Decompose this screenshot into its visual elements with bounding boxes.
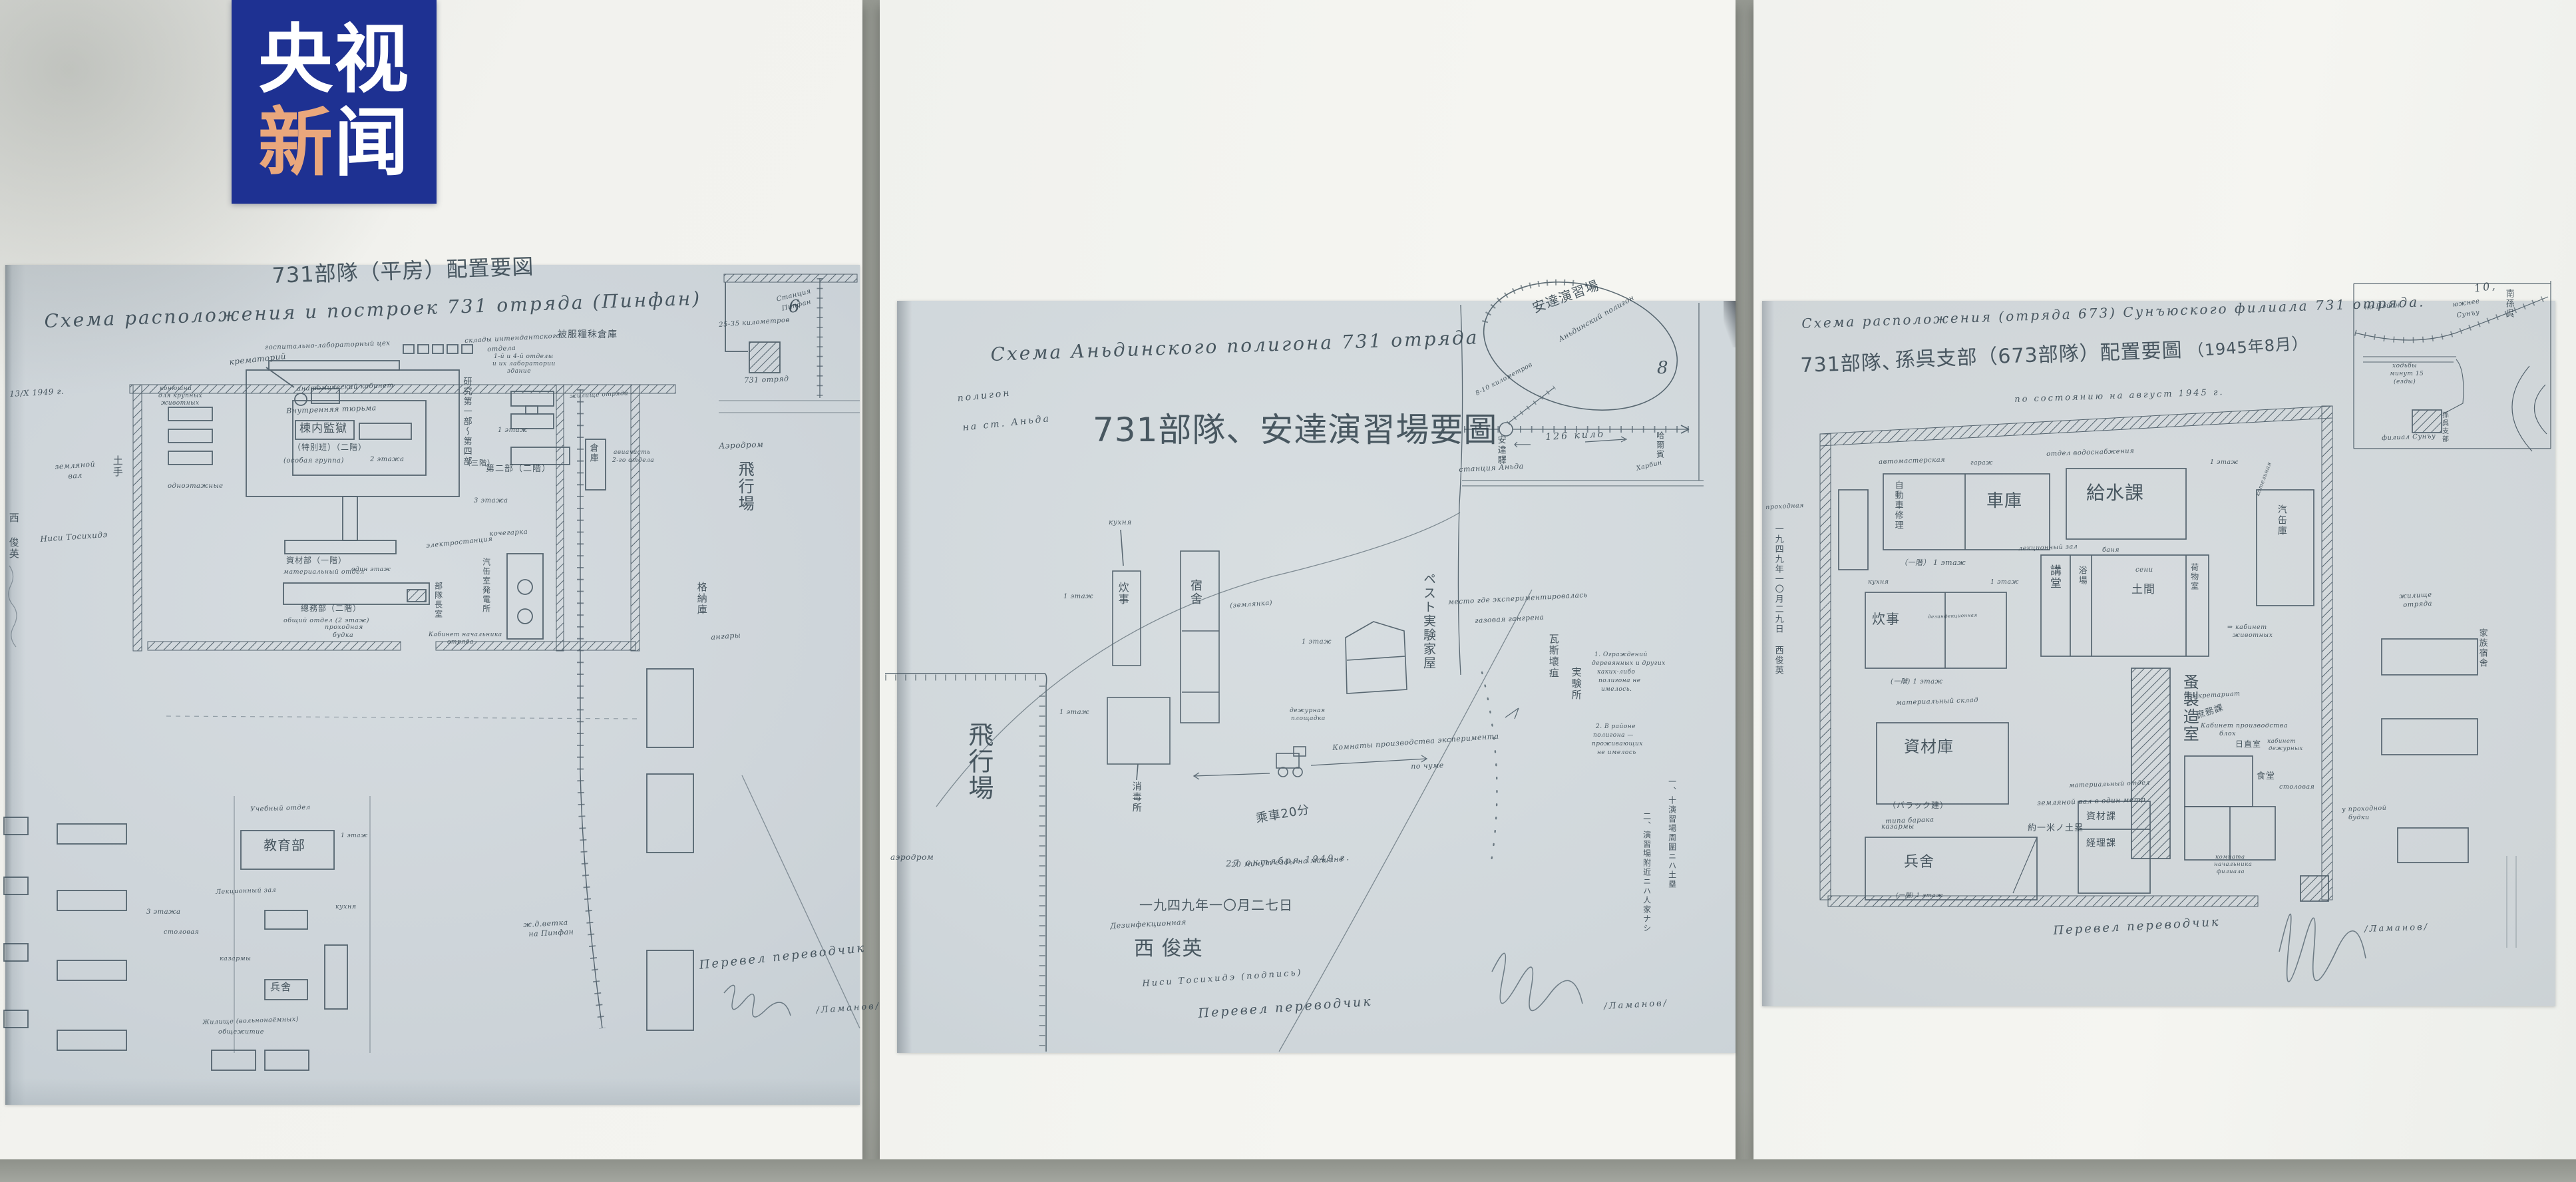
map-label: блох [2219, 731, 2236, 737]
map-label: Схема расположения (отряда 673) Сунъюско… [1801, 295, 2426, 331]
map-label: полигона не [1598, 678, 1641, 684]
map-label: у проходной [2342, 805, 2386, 813]
map-label: 棟内監獄 [299, 423, 347, 435]
map-label: конюшни [160, 386, 192, 392]
map-label: Схема Аньдинского полигона 731 отряда [990, 327, 1479, 364]
map-label: дезинфекционная [1928, 613, 1978, 620]
map-label: 安達驛 [1496, 435, 1505, 465]
news-photo-three-documents: { "logo": { "top": "央视", "bottom_orange"… [0, 0, 2576, 1182]
map-label: 1 этаж [1990, 579, 2019, 586]
map-label: кочегарка [489, 529, 528, 538]
map-label: （特別班）（二階） [293, 443, 367, 452]
map-label: по чуме [1411, 761, 1444, 770]
map-label: вал [68, 472, 83, 481]
map-label: 1. Ограждений [1594, 652, 1648, 658]
map-label: дежурная [1290, 708, 1326, 714]
map-label: 總務部（二階） [301, 604, 361, 613]
map-label: 実験所 [1570, 667, 1581, 701]
map-label: 731部隊、 [1800, 352, 1903, 377]
map-label: животных [161, 401, 200, 407]
map-label: аэродром [890, 853, 934, 862]
map-label: Сунъу [2456, 309, 2480, 319]
map-label: для крупных [158, 393, 202, 399]
map-label: 孫呉支部 [2440, 411, 2448, 443]
map-label: не имелось [1597, 750, 1636, 756]
map-label: отряда [447, 640, 474, 646]
map-label: кухня [1868, 579, 1889, 586]
map-label: 格納庫 [696, 582, 707, 616]
map-label: 車庫 [1986, 492, 2022, 510]
map-label: материальный склад [1896, 697, 1978, 707]
map-label: 西 俊英 [8, 512, 19, 560]
map-label: кухня [1109, 519, 1132, 526]
map-label: филиала [2217, 869, 2245, 875]
map-label: сени [2135, 567, 2153, 574]
map-label: секретариат [2190, 691, 2241, 700]
logo-text-top: 央视 [258, 19, 410, 102]
map-label: Аэродром [719, 441, 764, 451]
map-label: 南孫呉 [2504, 289, 2513, 319]
map-label: 西 俊英 [1134, 938, 1203, 960]
map-label: (землянка) [1230, 600, 1273, 610]
sheet-anda: Схема Аньдинского полигона 731 отряда8по… [880, 0, 1736, 1161]
map-label: 蚤製造室 [2181, 674, 2197, 743]
map-label: 2 этажа [370, 457, 404, 464]
map-label: 2. В районе [1596, 724, 1636, 730]
map-label: казармы [1881, 824, 1915, 831]
map-label: 1-й и 4-й отделы [494, 354, 554, 360]
map-label: 研究第一部～第四部 [462, 377, 471, 467]
map-label: 一九四九年一〇月二九日 西俊英 [1773, 524, 1783, 676]
map-label: 10, [2474, 280, 2497, 294]
map-label: 講堂 [2048, 564, 2060, 590]
map-label: материальный отдел [2069, 780, 2150, 789]
map-label: один этаж [351, 567, 391, 573]
logo-char-wen: 闻 [334, 100, 410, 186]
map-label: проходная [325, 624, 363, 631]
map-label: минут 15 [2390, 371, 2424, 377]
map-label: на Пинфан [528, 928, 574, 938]
map-label: и их лаборатории [492, 361, 556, 367]
map-label: одноэтажные [168, 483, 224, 491]
map-label: площадка [1291, 716, 1326, 722]
map-label: проживающих [1592, 741, 1643, 747]
map-label: столовая [2279, 784, 2314, 791]
map-label: 二、演習場附近ニハ人家ナシ [1642, 812, 1651, 933]
map-label: филиал Сунъу [2382, 433, 2436, 442]
map-label: земляной вал в один метр [2037, 796, 2145, 807]
map-label: будка [333, 632, 353, 639]
map-label: Дезинфекционная [1110, 918, 1187, 930]
map-label: будки [2348, 815, 2370, 821]
map-label: 25-35 километров [719, 317, 790, 329]
map-label: дежурных [2269, 746, 2303, 752]
map-label: каких-либо [1597, 670, 1635, 676]
map-label: на ст. Аньда [962, 414, 1051, 433]
map-label: крематорий [229, 352, 287, 366]
map-label: газовая гангрена [1475, 614, 1545, 625]
map-label: 飛行場 [965, 721, 992, 801]
map-label: здание [507, 369, 531, 375]
map-label: 1 этаж [341, 833, 368, 839]
map-label: 1 этаж [1302, 639, 1332, 646]
map-label: Комнаты производства эксперимента [1332, 733, 1499, 752]
map-label: южнее [2452, 298, 2480, 309]
map-label: 乘車20分 [1255, 804, 1311, 826]
map-label: 荷物室 [2190, 563, 2199, 591]
map-label: начальника [2214, 862, 2252, 868]
map-label: 哈爾賓 [1656, 431, 1664, 459]
map-label: 家族宿舍 [2478, 628, 2487, 668]
logo-char-xin: 新 [258, 100, 334, 186]
map-label: 8 [1657, 359, 1670, 377]
map-label: Учебный отдел [250, 805, 311, 814]
map-label: 瓦斯壞疽 [1548, 634, 1559, 679]
map-label: Схема расположения и построек 731 отряда… [44, 289, 702, 331]
map-label: 1 этаж [2210, 459, 2239, 466]
map-label: 資材庫 [1904, 739, 1954, 755]
map-label: 約一米ノ土塁 [2028, 824, 2084, 833]
map-label: отдела [487, 345, 516, 354]
map-label: место где экспериментировалась [1448, 592, 1588, 606]
map-label: 3 этажа [474, 498, 508, 505]
map-label: 3 этажа [146, 909, 180, 916]
map-label: 浴場 [2077, 566, 2086, 586]
map-label: 一、十演習場周圍ニハ土塁 [1668, 777, 1676, 889]
map-label: жилище отряда [570, 391, 628, 400]
map-label: 731 отряд [744, 375, 789, 385]
map-label: гараж [1970, 461, 1993, 467]
map-label: 日直室 [2235, 740, 2261, 749]
map-label: имелось. [1601, 687, 1632, 693]
map-label: казармы [220, 956, 251, 962]
map-label: 汽缶庫 [2277, 504, 2287, 536]
map-label: ペスト実験家屋 [1421, 572, 1435, 670]
map-label: Лекционный зал [216, 887, 276, 896]
map-label: кухня [335, 904, 357, 910]
map-label: отдел водоснабжения [2046, 448, 2134, 458]
map-label: 食堂 [2257, 772, 2275, 781]
map-label: 731部隊、安達演習場要圖 [1093, 413, 1497, 448]
map-label: (一階) 1 этаж [1896, 893, 1943, 899]
map-label: лекционный зал [2018, 544, 2078, 552]
map-label: 兵舍 [1904, 855, 1934, 870]
cctv-news-logo: 央视 新闻 [232, 0, 437, 204]
map-label: /Ламанов/ [1604, 999, 1668, 1012]
map-label: отряда [2403, 601, 2432, 610]
map-label: （1945年8月） [2187, 335, 2309, 360]
map-label: 1 этаж [1063, 594, 1093, 601]
logo-text-bottom: 新闻 [258, 102, 410, 185]
map-label: полигона — [1593, 733, 1634, 739]
map-label: 8-10 километров [1475, 361, 1534, 397]
map-label: 飛行場 [736, 461, 753, 512]
map-label: /Ламанов/ [816, 1002, 881, 1015]
map-label: станция Аньда [1459, 463, 1524, 474]
map-label: жилище [2399, 592, 2432, 600]
map-label: 第二部（二階） [486, 465, 551, 474]
sheet-sunwu: Схема расположения (отряда 673) Сунъюско… [1753, 0, 2576, 1161]
map-label: Ниси Тосихидэ [40, 530, 108, 544]
map-label: комната [2215, 855, 2245, 861]
map-label: баня [2102, 547, 2119, 554]
map-label: （バラック建） [1888, 801, 1948, 810]
map-label: по состоянию на август 1945 г. [2014, 388, 2225, 405]
desk-surface [0, 1159, 2576, 1182]
map-label: Внутренняя тюрьма [286, 404, 377, 415]
map-label: 炊事 [1872, 612, 1900, 626]
map-label: 自動車修理 [1893, 481, 1903, 530]
map-label: 教育部 [264, 839, 305, 853]
map-label: 孫呉支部（673部隊）配置要圖 [1895, 340, 2183, 371]
map-label: склады интендантского [464, 333, 560, 345]
map-label: Жилище (вольнонаёмных) [202, 1016, 299, 1026]
map-label: ходьбы [2392, 363, 2417, 369]
map-label: 2-го отдела [612, 458, 654, 464]
map-label: Кабинет производства [2201, 723, 2288, 729]
map-label: полигон [957, 389, 1012, 404]
labels-sunwu: Схема расположения (отряда 673) Сунъюско… [1753, 0, 2576, 1161]
map-label: 一九四九年一〇月二七日 [1139, 898, 1293, 912]
labels-anda: Схема Аньдинского полигона 731 отряда8по… [880, 0, 1736, 1161]
map-label: проходная [1765, 502, 1804, 511]
map-label: Ниси Тосихидэ (подпись) [1142, 968, 1303, 988]
map-label: ⇒ кабинет [2227, 624, 2267, 631]
map-label: 被服糧秣倉庫 [558, 330, 618, 340]
map-label: 13/X 1949 г. [9, 387, 64, 399]
map-label: (особая группа) [283, 458, 344, 465]
map-label: 炊事 [1117, 582, 1128, 606]
map-label: котельная [2255, 461, 2273, 497]
map-label: /Ламанов/ [2364, 923, 2429, 934]
map-label: 部隊長室 [434, 582, 443, 619]
map-label: автомастерская [1879, 457, 1945, 467]
map-label: 倉庫 [588, 443, 598, 463]
map-label: госпитально-лабораторный цех [265, 340, 391, 351]
map-label: животных [2233, 632, 2273, 639]
map-label: деревянных и других [1592, 661, 1666, 667]
map-label: земляной [55, 461, 96, 471]
map-label: общежитие [218, 1029, 264, 1036]
map-label: 731部隊（平房）配置要図 [272, 256, 534, 287]
map-label: столовая [164, 929, 199, 936]
map-label: 兵舍 [270, 982, 291, 993]
map-label: （一階） 1 этаж [1900, 559, 1966, 567]
map-label: (езды) [2394, 379, 2416, 385]
map-label: 資材部（一階） [286, 556, 347, 565]
map-label: анатомический кабинет [297, 383, 394, 393]
map-label: ангары [711, 632, 741, 642]
map-label: 庶務課 [2195, 703, 2225, 721]
map-label: 土手 [112, 455, 122, 478]
map-label: 27 октября 1949 г. [1226, 853, 1352, 869]
map-label: 消毒所 [1131, 781, 1141, 813]
map-label: Перевел переводчик [2053, 916, 2221, 938]
map-label: 安達演習場 [1531, 278, 1601, 315]
map-label: ж.д.ветка [523, 918, 568, 928]
map-label: 宿舍 [1189, 579, 1201, 606]
map-label: электростанция [426, 536, 493, 550]
map-label: 汽缶室発電所 [482, 558, 490, 614]
map-label: 資材課 [2086, 812, 2116, 822]
map-label: кабинет [2267, 739, 2296, 745]
map-label: Кабинет начальника [429, 632, 502, 638]
map-label: 1 этаж [1059, 709, 1089, 717]
map-label: Перевел переводчик [699, 942, 866, 972]
map-label: авиачасть [614, 450, 651, 456]
map-label: (一階) 1 этаж [1891, 679, 1942, 686]
map-label: Харбин [1636, 459, 1663, 472]
map-label: 給水課 [2086, 483, 2144, 502]
map-label: 土間 [2131, 584, 2155, 596]
map-label: 経理課 [2086, 839, 2116, 849]
map-label: Перевел переводчик [1198, 996, 1373, 1021]
map-label: 126 кило [1545, 429, 1606, 442]
map-label: 1 этаж [498, 427, 528, 435]
